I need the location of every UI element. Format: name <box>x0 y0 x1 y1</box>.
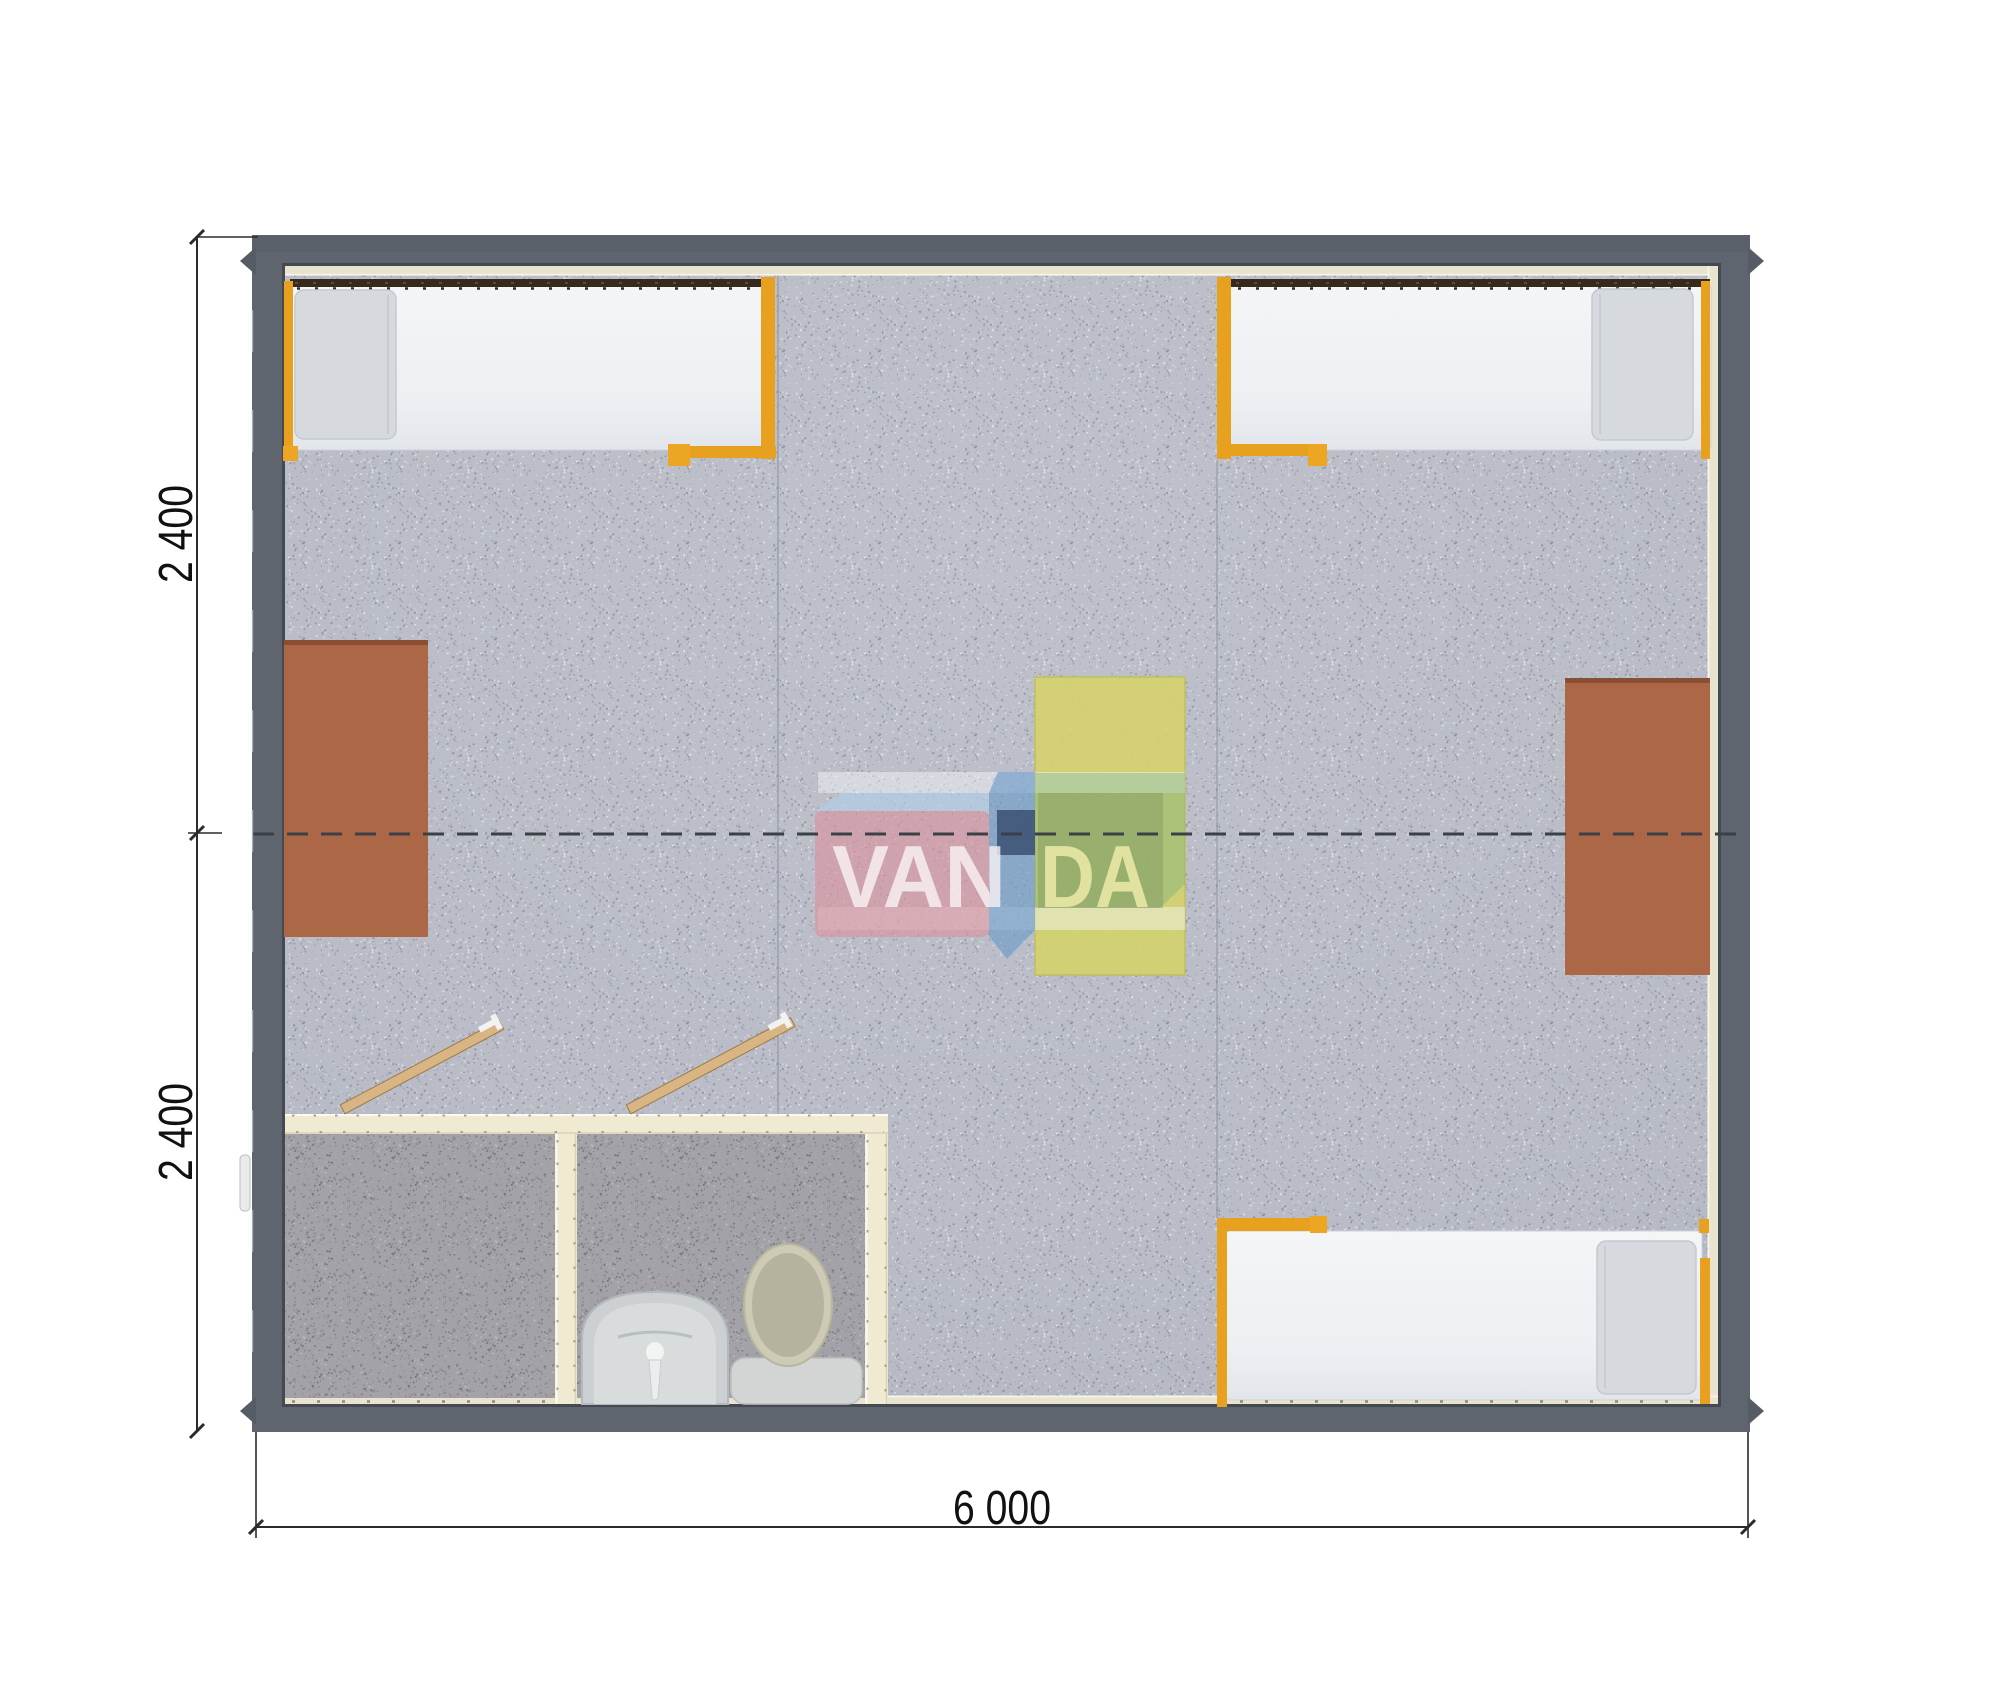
svg-text:DA: DA <box>1040 827 1150 926</box>
svg-text:2 400: 2 400 <box>150 485 203 583</box>
svg-text:2 400: 2 400 <box>150 1083 203 1181</box>
svg-text:VAN: VAN <box>832 827 1006 926</box>
svg-text:6 000: 6 000 <box>953 1482 1051 1535</box>
